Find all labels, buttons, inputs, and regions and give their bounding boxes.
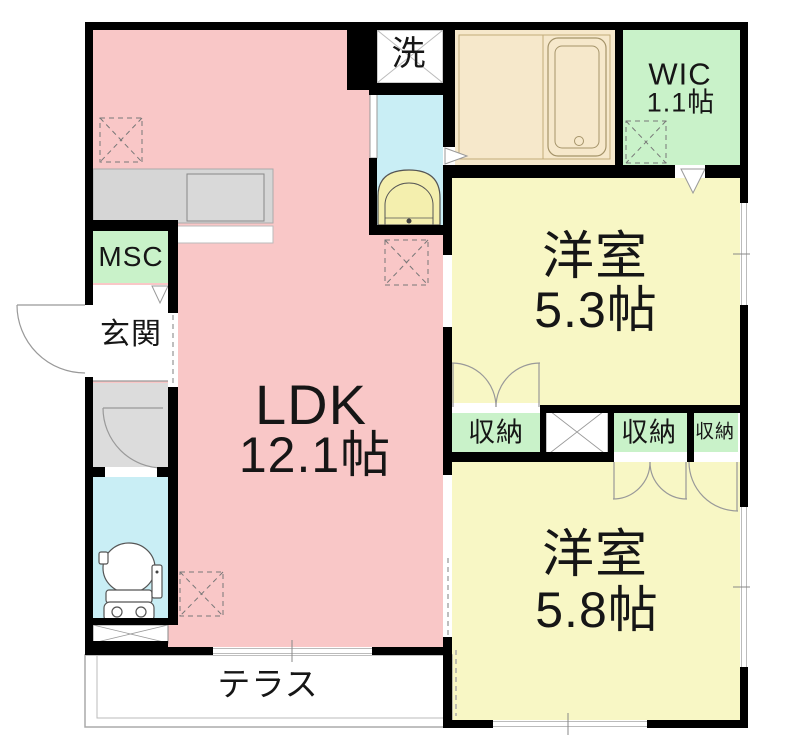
wic-name-label: WIC [648, 59, 711, 90]
ldk-name-label: LDK [255, 377, 367, 433]
laundry-label: 洗 [392, 37, 427, 71]
bedroom58-size-label: 5.8帖 [535, 585, 659, 635]
hall-floor [93, 383, 168, 467]
bedroom53-name-label: 洋室 [542, 231, 648, 283]
ldk-size-label: 12.1帖 [239, 430, 391, 480]
terrace-label: テラス [217, 668, 318, 701]
msc-label: MSC [98, 243, 163, 271]
floor-plan: LDK 12.1帖 洋室 5.3帖 洋室 5.8帖 WIC 1.1帖 MSC 玄… [0, 0, 800, 748]
storage-right-label: 収納 [695, 423, 735, 442]
wic-size-label: 1.1帖 [647, 90, 716, 117]
storage-middle-label: 収納 [621, 420, 677, 447]
bedroom53-size-label: 5.3帖 [534, 285, 658, 335]
stove-icon [187, 174, 264, 221]
storage-left-label: 収納 [468, 420, 524, 447]
bedroom58-name-label: 洋室 [542, 529, 648, 581]
pipe-space-middle [546, 408, 608, 456]
pipe-space-toilet [93, 625, 168, 643]
entrance-door-arc [17, 305, 85, 373]
washbasin-icon [378, 170, 440, 225]
bathroom-floor [455, 30, 615, 165]
washroom-sliding-door [370, 92, 377, 158]
entrance-label: 玄関 [100, 320, 162, 350]
